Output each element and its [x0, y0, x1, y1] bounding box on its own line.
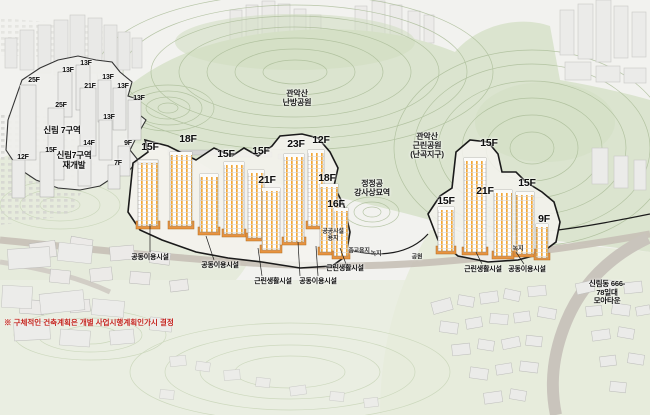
floor-label-adjacent: 13F: [102, 74, 113, 82]
floor-label-adjacent: 14F: [83, 140, 94, 148]
note-text: ※ 구체적인 건축계획은 개별 사업시행계획인가시 결정: [4, 317, 174, 328]
floor-label-adjacent: 13F: [133, 95, 144, 103]
facility-label: 공동이용시설: [299, 278, 336, 286]
facility-label: 공동이용시설: [201, 262, 238, 270]
tower: [136, 160, 160, 229]
floor-label: 18F: [318, 172, 336, 184]
floor-label-adjacent: 25F: [28, 77, 39, 85]
floor-label: 15F: [518, 177, 536, 189]
tower: [260, 188, 282, 253]
floor-label: 9F: [538, 213, 550, 225]
floor-label: 16F: [327, 198, 345, 210]
floor-label-adjacent: 13F: [80, 60, 91, 68]
facility-label: 공동이용시설: [508, 266, 545, 274]
facility-label: 근린생활시설: [326, 265, 363, 273]
floor-label-adjacent: 13F: [103, 114, 114, 122]
land-use-label: 공원: [412, 255, 423, 262]
aerial-rendering: 15F 18F 15F 15F 21F 23F 12F 18F 16F 15F …: [0, 0, 650, 415]
floor-label: 15F: [141, 141, 159, 153]
tower: [534, 224, 550, 260]
facility-label: 근린생활시설: [464, 266, 501, 274]
land-use-label: 공공시설 용지: [322, 229, 343, 243]
heritage-site-label: 정정공 강사상묘역: [354, 179, 390, 197]
floor-label-adjacent: 12F: [17, 154, 28, 162]
site-area-label: 신림동 666-78일대 모아타운: [586, 280, 629, 306]
floor-label-adjacent: 9F: [124, 140, 132, 148]
tower: [436, 207, 456, 254]
tower: [462, 158, 488, 255]
floor-label: 15F: [252, 145, 270, 157]
land-use-label: 녹지: [513, 247, 524, 254]
tower: [222, 162, 246, 237]
floor-label: 21F: [258, 174, 276, 186]
tower: [492, 190, 514, 259]
floor-label: 15F: [480, 137, 498, 149]
floor-label: 15F: [217, 148, 235, 160]
land-use-label: 종교용지: [348, 249, 369, 256]
floor-label: 21F: [476, 185, 494, 197]
floor-label-adjacent: 15F: [45, 147, 56, 155]
tower: [168, 152, 194, 229]
tower: [282, 154, 306, 245]
site-3d-map: [0, 0, 650, 415]
park-label-right: 관악산 근린공원 (난곡지구): [410, 132, 444, 160]
floor-label: 12F: [312, 134, 330, 146]
floor-label-adjacent: 25F: [55, 102, 66, 110]
facility-label: 근린생활시설: [254, 278, 291, 286]
district-redevelopment-label: 신림7구역 재개발: [56, 151, 91, 171]
tower: [198, 174, 220, 235]
floor-label-adjacent: 13F: [117, 83, 128, 91]
park-label-center: 관악산 난방공원: [283, 89, 312, 107]
floor-label: 18F: [179, 133, 197, 145]
district-label: 신림 7구역: [43, 126, 80, 136]
floor-label: 15F: [437, 195, 455, 207]
floor-label-adjacent: 21F: [84, 83, 95, 91]
floor-label: 23F: [287, 138, 305, 150]
floor-label-adjacent: 7F: [114, 160, 122, 168]
land-use-label: 녹지: [371, 252, 382, 259]
facility-label: 공동이용시설: [131, 254, 168, 262]
floor-label-adjacent: 13F: [62, 67, 73, 75]
